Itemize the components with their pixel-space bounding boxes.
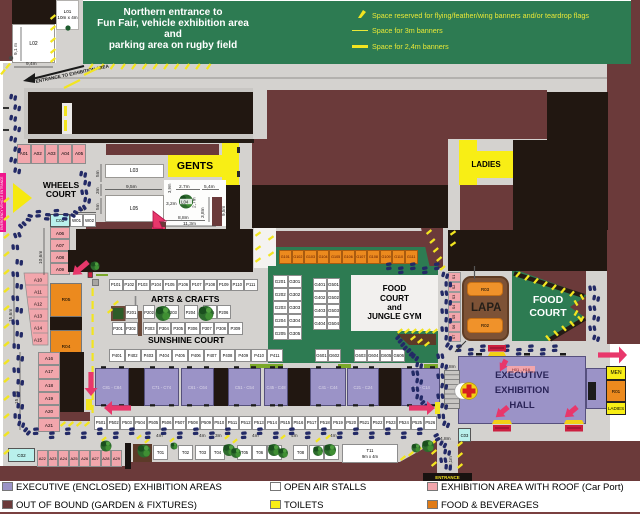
svg-text:3,2m: 3,2m <box>166 201 177 207</box>
svg-text:10,6m: 10,6m <box>38 251 44 264</box>
svg-text:3m: 3m <box>215 433 222 439</box>
svg-text:5,1m: 5,1m <box>448 456 453 466</box>
svg-text:5,4m: 5,4m <box>204 184 215 190</box>
svg-text:9,5m: 9,5m <box>126 184 137 190</box>
svg-text:11,3m: 11,3m <box>183 221 196 227</box>
svg-text:L04: L04 <box>181 199 189 204</box>
svg-text:3,9m: 3,9m <box>167 183 172 193</box>
svg-text:3,8m: 3,8m <box>200 207 206 218</box>
svg-text:3m: 3m <box>95 187 101 194</box>
svg-text:4m: 4m <box>330 433 337 439</box>
svg-text:2.7m: 2.7m <box>179 184 190 190</box>
svg-text:9,1 m: 9,1 m <box>13 43 19 55</box>
svg-text:5m: 5m <box>95 203 101 210</box>
svg-text:4m: 4m <box>199 433 206 439</box>
svg-text:9,4m: 9,4m <box>26 61 37 67</box>
svg-text:5m: 5m <box>95 170 101 177</box>
svg-text:8,8m: 8,8m <box>178 215 189 221</box>
svg-text:9,5m: 9,5m <box>221 206 226 216</box>
